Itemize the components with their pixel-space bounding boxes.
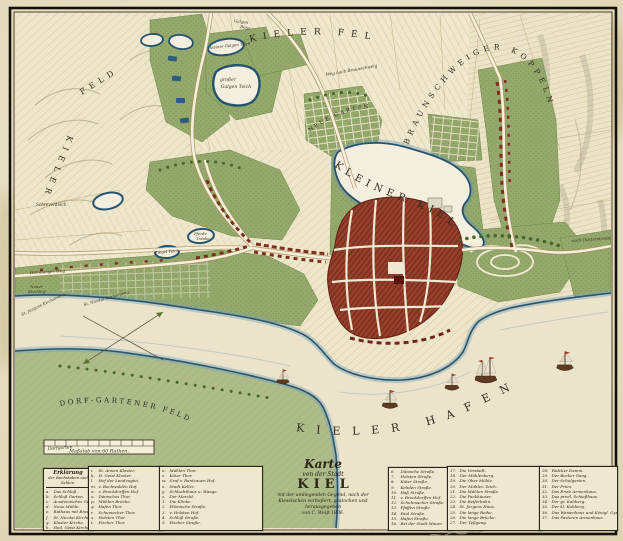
map-canvas: Maßstab von 60 Ruthen. KIELER FELD FELD … <box>0 0 623 541</box>
label-schreventeich: Schreventeich <box>36 202 67 207</box>
label-pferde-traenke-2: Tränke <box>196 236 210 241</box>
label-neuer-kirchhof-2: Kirchhof <box>27 289 47 294</box>
label-grosser-galgen-teich-2: Galgen Teich <box>221 84 251 90</box>
st-nicolai-church-block <box>394 276 404 284</box>
antique-map-of-kiel: Maßstab von 60 Ruthen. KIELER FELD FELD … <box>0 0 623 541</box>
label-grosser-galgen-teich: großer <box>220 77 237 83</box>
scale-bar-label: Maßstab von 60 Ruthen. <box>68 449 129 455</box>
market-square <box>388 262 404 274</box>
